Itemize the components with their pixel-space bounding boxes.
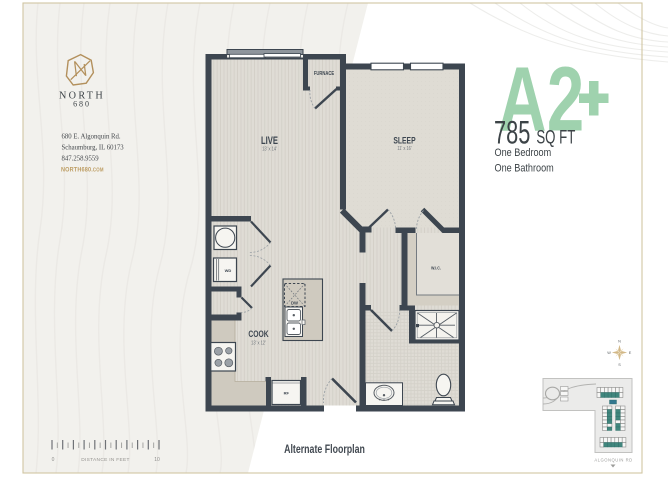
svg-text:680: 680 (73, 100, 91, 109)
svg-text:RF: RF (284, 390, 290, 395)
svg-text:13' x 12': 13' x 12' (251, 340, 266, 346)
svg-text:DW: DW (291, 301, 298, 306)
svg-text:ALGONQUIN RD: ALGONQUIN RD (594, 458, 632, 463)
svg-text:847.258.9559: 847.258.9559 (62, 154, 100, 162)
svg-text:Schaumburg, IL 60173: Schaumburg, IL 60173 (62, 143, 125, 151)
svg-text:10: 10 (154, 457, 160, 463)
svg-text:One Bathroom: One Bathroom (495, 163, 554, 175)
svg-text:E: E (629, 351, 632, 355)
svg-text:SLEEP: SLEEP (393, 135, 416, 145)
svg-text:0: 0 (52, 457, 55, 463)
svg-text:11' x 16': 11' x 16' (397, 146, 411, 152)
svg-text:LIVE: LIVE (261, 135, 278, 146)
svg-text:W.I.C.: W.I.C. (431, 265, 441, 271)
svg-text:13' x 14': 13' x 14' (262, 146, 277, 152)
svg-text:DISTANCE IN FEET: DISTANCE IN FEET (81, 457, 129, 463)
svg-text:COOK: COOK (248, 329, 268, 339)
svg-text:Alternate Floorplan: Alternate Floorplan (284, 444, 365, 456)
svg-text:W: W (607, 351, 611, 355)
svg-text:One Bedroom: One Bedroom (495, 147, 552, 159)
svg-text:WD: WD (225, 268, 232, 273)
svg-text:S: S (618, 363, 621, 367)
svg-text:FURNACE: FURNACE (314, 71, 334, 77)
svg-text:680 E. Algonquin Rd.: 680 E. Algonquin Rd. (62, 132, 121, 140)
svg-text:N: N (618, 339, 621, 343)
